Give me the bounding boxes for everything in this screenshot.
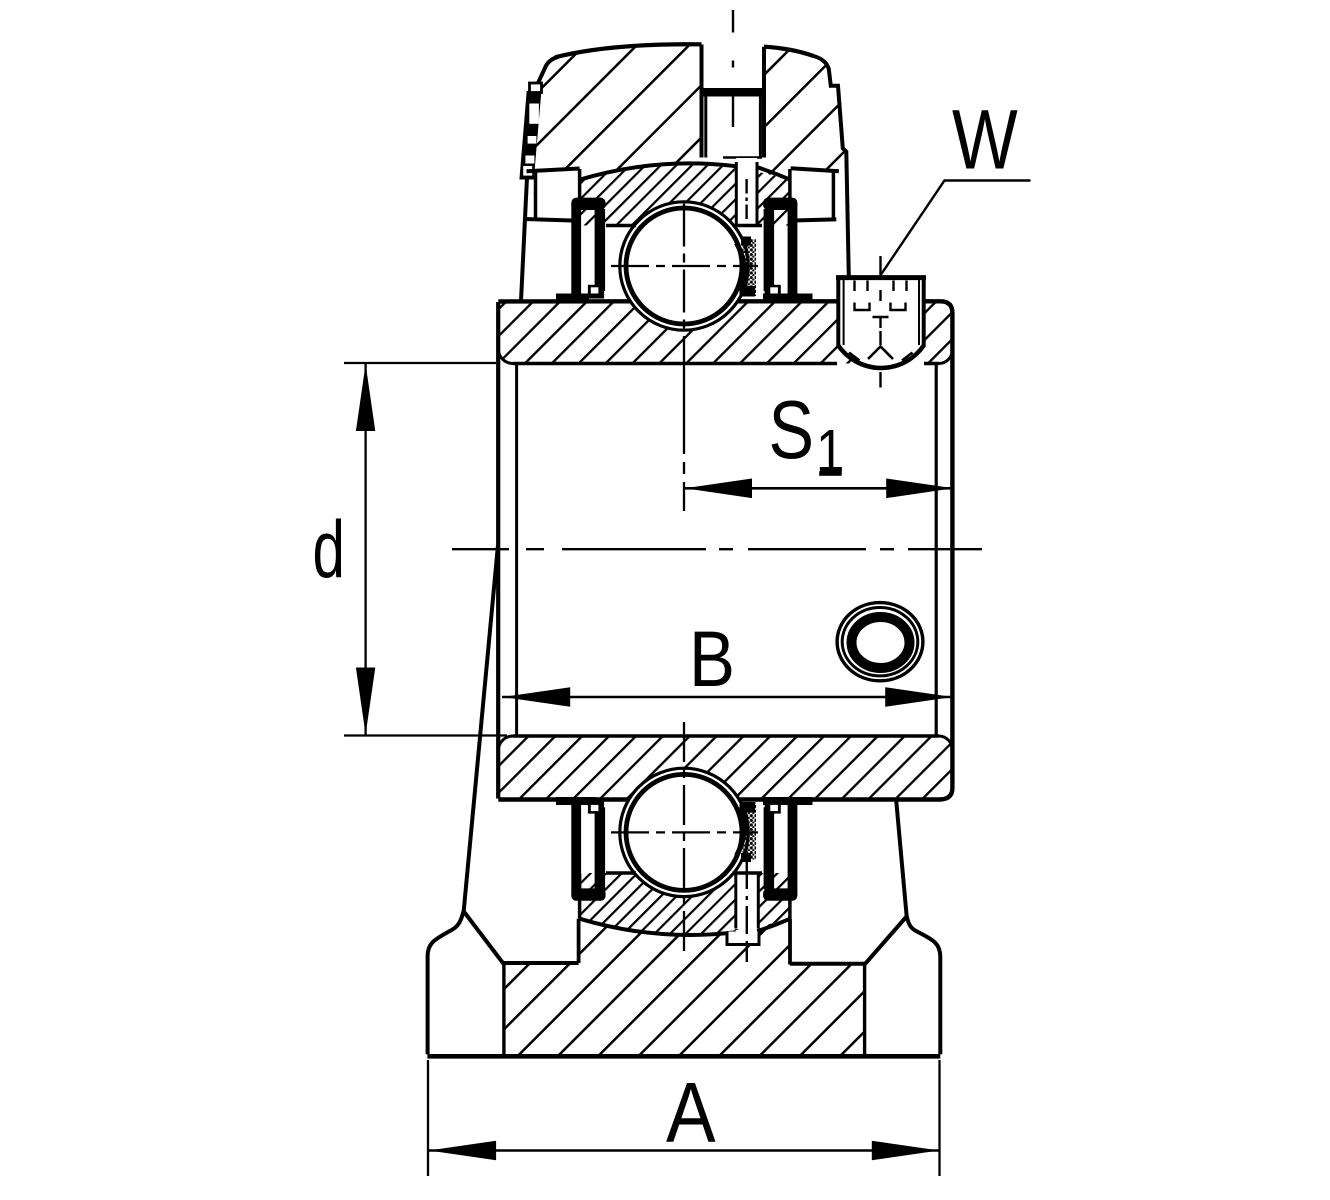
svg-text:A: A: [666, 1065, 716, 1160]
svg-text:S: S: [769, 384, 815, 477]
svg-text:d: d: [313, 504, 345, 595]
svg-text:W: W: [952, 93, 1018, 187]
svg-text:B: B: [689, 615, 735, 703]
